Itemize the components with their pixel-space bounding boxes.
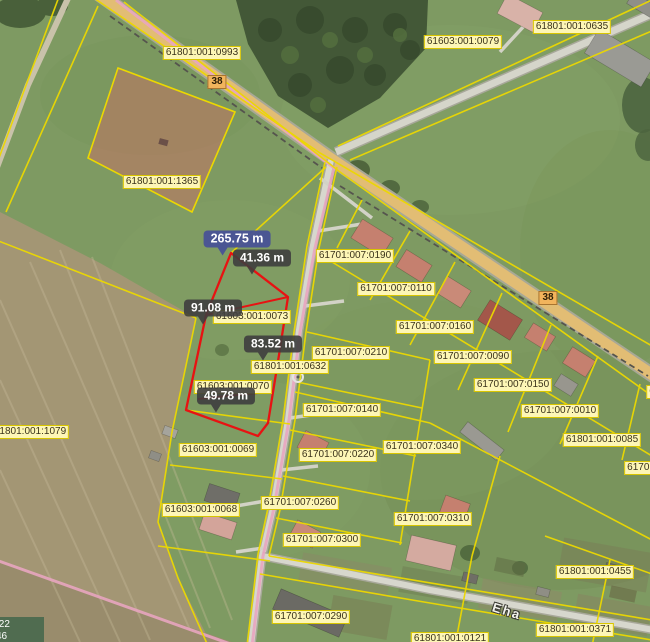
measure-segment-label: 49.78 m [197,388,255,405]
parcel-label[interactable]: 61701:007:0260 [261,496,339,510]
parcel-label[interactable]: 61603:001:0068 [162,503,240,517]
measure-segment-label: 91.08 m [184,300,242,317]
measure-label-pointer [258,353,268,361]
parcel-label[interactable]: 6 [646,385,650,399]
measure-label-pointer [211,405,221,413]
parcel-label[interactable]: 61801:001:0635 [533,20,611,34]
parcel-label[interactable]: 61701:007:0340 [383,440,461,454]
parcel-label[interactable]: 61801:001:0121 [411,632,489,642]
parcel-label[interactable]: 61701:007:0140 [303,403,381,417]
parcel-label[interactable]: 61701:007:0220 [299,448,377,462]
parcel-label[interactable]: 61701:007:0290 [272,610,350,624]
parcel-label[interactable]: 61701:007:0010 [521,404,599,418]
measure-label-pointer [198,317,208,325]
parcel-label[interactable]: 61701:007:0300 [283,533,361,547]
parcel-label[interactable]: 61801:001:0632 [251,360,329,374]
measure-label-pointer [218,248,228,256]
parcel-label[interactable]: 61701:007:0150 [474,378,552,392]
parcel-label[interactable]: 61701:007:0210 [312,346,390,360]
coordinate-readout: .22 46 [0,617,44,642]
parcel-label[interactable]: 61701:007:0160 [396,320,474,334]
street-name-label: Eha [491,599,524,622]
parcel-label[interactable]: 61801:001:0085 [563,433,641,447]
map-viewport[interactable]: .22 46 61801:001:099361603:001:007961801… [0,0,650,642]
parcel-label[interactable]: 61801:001:1365 [123,175,201,189]
coordinate-line-2: 46 [0,631,40,642]
measure-segment-label: 83.52 m [244,336,302,353]
parcel-label[interactable]: 61603:001:0069 [179,443,257,457]
parcel-label[interactable]: 61701:00 [624,461,650,475]
parcel-label[interactable]: 61603:001:0079 [424,35,502,49]
parcel-label[interactable]: 61801:001:1079 [0,425,69,439]
parcel-label[interactable]: 61801:001:0371 [536,623,614,637]
parcel-label[interactable]: 61801:001:0993 [163,46,241,60]
parcel-label[interactable]: 61701:007:0190 [316,249,394,263]
parcel-label[interactable]: 61701:007:0310 [394,512,472,526]
parcel-label[interactable]: 61701:007:0090 [434,350,512,364]
road-number-marker: 38 [538,291,557,305]
measure-label-pointer [247,267,257,275]
measure-segment-label: 41.36 m [233,250,291,267]
measure-total-label: 265.75 m [204,231,271,248]
road-number-marker: 38 [207,75,226,89]
coordinate-line-1: .22 [0,619,40,631]
map-labels-overlay: .22 46 61801:001:099361603:001:007961801… [0,0,650,642]
parcel-label[interactable]: 61701:007:0110 [357,282,435,296]
parcel-label[interactable]: 61801:001:0455 [556,565,634,579]
